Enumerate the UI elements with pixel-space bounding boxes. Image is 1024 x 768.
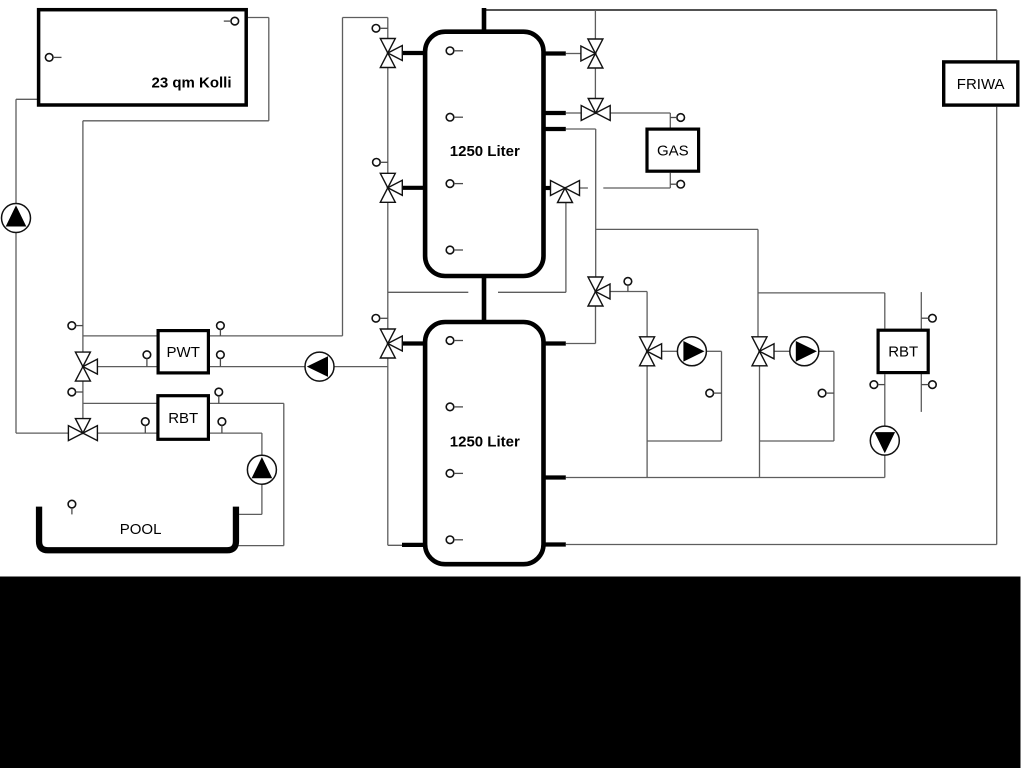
svg-text:RBT: RBT	[168, 410, 198, 427]
svg-text:POOL: POOL	[120, 521, 162, 538]
svg-text:FRIWA: FRIWA	[957, 76, 1005, 93]
svg-text:PWT: PWT	[167, 344, 200, 361]
svg-text:1250 Liter: 1250 Liter	[450, 143, 520, 160]
svg-text:RBT: RBT	[888, 344, 918, 361]
svg-text:23 qm Kolli: 23 qm Kolli	[151, 75, 231, 92]
svg-text:GAS: GAS	[657, 142, 689, 159]
svg-text:1250 Liter: 1250 Liter	[450, 433, 520, 450]
